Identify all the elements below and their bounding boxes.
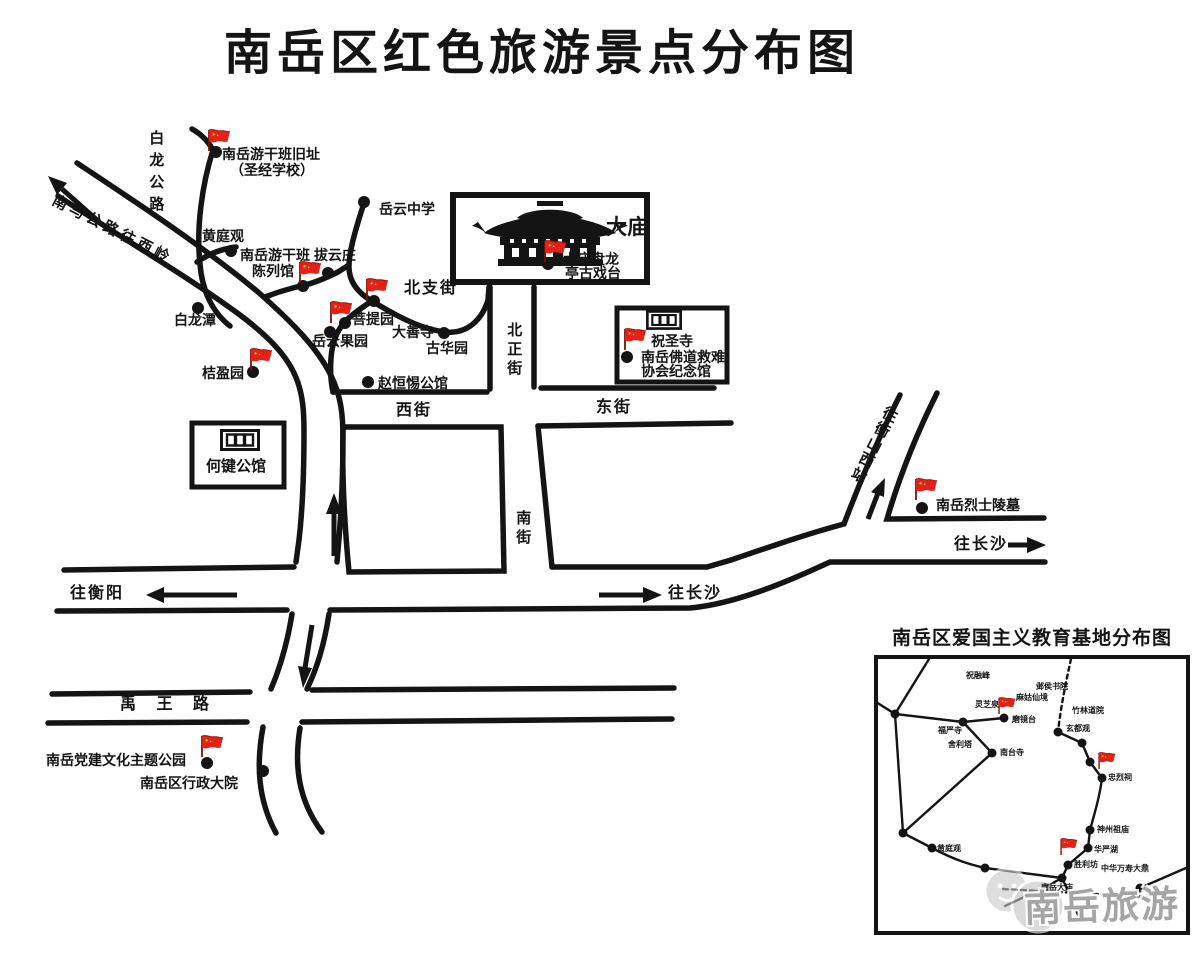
road-yuwang-north-w	[52, 692, 250, 694]
label-bailongtan: 白龙潭	[174, 312, 216, 328]
map-canvas	[0, 0, 1200, 967]
dot-chenlieguan	[297, 280, 309, 292]
label-to-hengyang: 往衡阳	[70, 585, 124, 603]
label-huangtingguan: 黄庭观	[202, 228, 244, 244]
arrow-ne-head	[871, 478, 885, 497]
dot-dangjian-park	[201, 757, 213, 769]
dot-jiunan-memorial	[621, 351, 633, 363]
inset-dot-shenzhou	[1086, 826, 1095, 835]
inset-dot-node-g	[1078, 739, 1087, 748]
label-hejian-mansion: 何键公馆	[206, 458, 266, 475]
road-highway-north-w	[64, 567, 294, 570]
arrow-changsha-mid-head	[643, 587, 662, 603]
label-west-street: 西街	[396, 402, 432, 420]
dot-damiao-stage	[542, 258, 554, 270]
road-ne-west-edge	[731, 395, 900, 560]
label-jiunan-memorial-2: 协会纪念馆	[641, 363, 711, 379]
inset-label-victory-arch: 胜利坊	[1074, 860, 1098, 869]
dot-juyingyuan	[247, 366, 259, 378]
inset-dot-shenglifang	[1064, 861, 1073, 870]
inset-label-yehou-academy: 邺侯书院	[1036, 682, 1068, 691]
block-east-left	[538, 426, 552, 567]
inset-label-mojing-terrace: 磨镜台	[1012, 715, 1036, 724]
hejian-building-icon	[222, 431, 259, 450]
label-chenlieguan-2: 陈列馆	[252, 263, 294, 279]
label-ganban-site-1: 南岳游干班旧址	[222, 146, 320, 162]
label-guhuayuan: 古华园	[426, 340, 468, 356]
inset-dot-mojingtai	[1000, 714, 1009, 723]
dot-boyunzhuang	[322, 267, 334, 279]
label-zhushengsi: 祝圣寺	[651, 333, 693, 349]
arrow-changsha-right-head	[1027, 537, 1046, 553]
road-main-south2-east	[298, 728, 322, 832]
label-damiao: 大庙	[606, 216, 648, 240]
inset-label-xuandu-temple: 玄都观	[1066, 724, 1090, 733]
block-west	[343, 427, 504, 572]
label-chenlieguan-1: 南岳游干班 拔云庄	[240, 247, 356, 263]
label-zhaohengti: 赵恒惕公馆	[378, 375, 448, 391]
dot-huangtingguan	[225, 245, 237, 257]
label-admin-compound: 南岳区行政大院	[140, 775, 238, 791]
inset-dot-xuandu	[1054, 728, 1063, 737]
dot-martyrs-cemetery	[916, 502, 928, 514]
road-yuwang-south-w	[48, 722, 247, 723]
inset-label-wanshou-tripod: 中华万寿大鼎	[1101, 864, 1149, 873]
inset-dot-junction-c	[899, 829, 908, 838]
inset-label-magu-fairyland: 麻姑仙境	[1016, 693, 1048, 702]
inset-label-fuyan-temple: 福严寺	[938, 726, 962, 735]
inset-label-lingzhi-spring: 灵芝泉	[975, 700, 999, 709]
dot-yueyun-school	[358, 196, 370, 208]
road-yuwang-north-e	[312, 688, 674, 690]
inset-dot-huayanhu	[1084, 844, 1093, 853]
label-east-street: 东街	[596, 399, 632, 417]
arrow-ne-shaft	[868, 493, 878, 519]
inset-label-nantai-temple: 南台寺	[1000, 748, 1024, 757]
inset-title: 南岳区爱国主义教育基地分布图	[876, 628, 1188, 650]
inset-label-huayan-lake: 华严湖	[1094, 845, 1118, 854]
label-ganban-site-2: （圣经学校）	[230, 162, 314, 178]
road-yuwang-south-e	[302, 719, 672, 722]
road-highway-south-w	[57, 610, 287, 611]
dot-admin-compound	[257, 765, 269, 777]
label-to-changsha-mid: 往长沙	[668, 585, 722, 603]
flag-dangjian-park-icon	[202, 736, 223, 757]
label-martyrs-cemetery: 南岳烈士陵墓	[936, 497, 1020, 513]
label-yueyun-school: 岳云中学	[379, 201, 435, 217]
inset-label-zhulin-temple: 竹林道院	[1072, 706, 1104, 715]
inset-label-sarira-stupa: 舍利塔	[948, 740, 972, 749]
dot-beizhi-junction	[368, 295, 380, 307]
road-main-south2-west	[259, 727, 276, 833]
inset-label-shenzhou-temple: 神州祖庙	[1097, 825, 1129, 834]
inset-label-huangtingguan: 黄庭观	[937, 844, 961, 853]
label-juyingyuan: 桔盈园	[202, 365, 244, 381]
inset-dot-nantaisi	[988, 749, 997, 758]
label-bailong-road: 白龙公路	[147, 130, 164, 218]
label-damiao-stage-2: 亭古戏台	[565, 265, 621, 281]
inset-dot-huangtingguan	[928, 844, 937, 853]
inset-dot-junction-a	[891, 710, 900, 719]
label-beizhi-street: 北支街	[404, 280, 458, 298]
arrow-hengyang-head	[146, 587, 164, 603]
inset-label-zhurong-peak: 祝融峰	[966, 671, 990, 680]
label-beizheng-street: 北正街	[505, 322, 522, 379]
zhushengsi-building-icon	[647, 311, 680, 328]
map-page: 南岳区红色旅游景点分布图 白龙公路 南马公路往西岭 南岳游干班旧址 （圣经学校）…	[0, 0, 1200, 967]
inset-dot-zhonglieci	[1098, 774, 1107, 783]
watermark-text: 南岳旅游	[1023, 883, 1180, 931]
label-yuwang-road: 禹 王 路	[120, 696, 217, 714]
label-dashansi: 大善寺	[392, 324, 434, 340]
dot-zhaohengti	[362, 376, 374, 388]
label-yueyun-orchard: 岳云果园	[312, 333, 368, 349]
block-east-bottom	[552, 560, 731, 567]
dot-ganban-site	[210, 146, 222, 158]
dot-dashansi	[438, 327, 450, 339]
inset-dot-node-n	[981, 864, 990, 873]
arrow-down-shaft	[305, 625, 312, 668]
block-east-top	[538, 423, 731, 426]
label-south-street: 南街	[514, 510, 531, 548]
inset-dot-node-m	[1058, 874, 1067, 883]
road-main-south1-west	[271, 614, 292, 689]
dot-putiyuan	[339, 317, 351, 329]
page-title: 南岳区红色旅游景点分布图	[192, 26, 892, 81]
inset-dot-node-h	[1086, 758, 1095, 767]
label-to-changsha-right: 往长沙	[954, 536, 1008, 554]
label-putiyuan: 菩提园	[352, 311, 394, 327]
label-dangjian-park: 南岳党建文化主题公园	[46, 752, 186, 768]
flag-martyrs-cemetery-icon	[916, 479, 937, 500]
inset-label-martyrs-shrine: 忠烈祠	[1108, 773, 1132, 782]
